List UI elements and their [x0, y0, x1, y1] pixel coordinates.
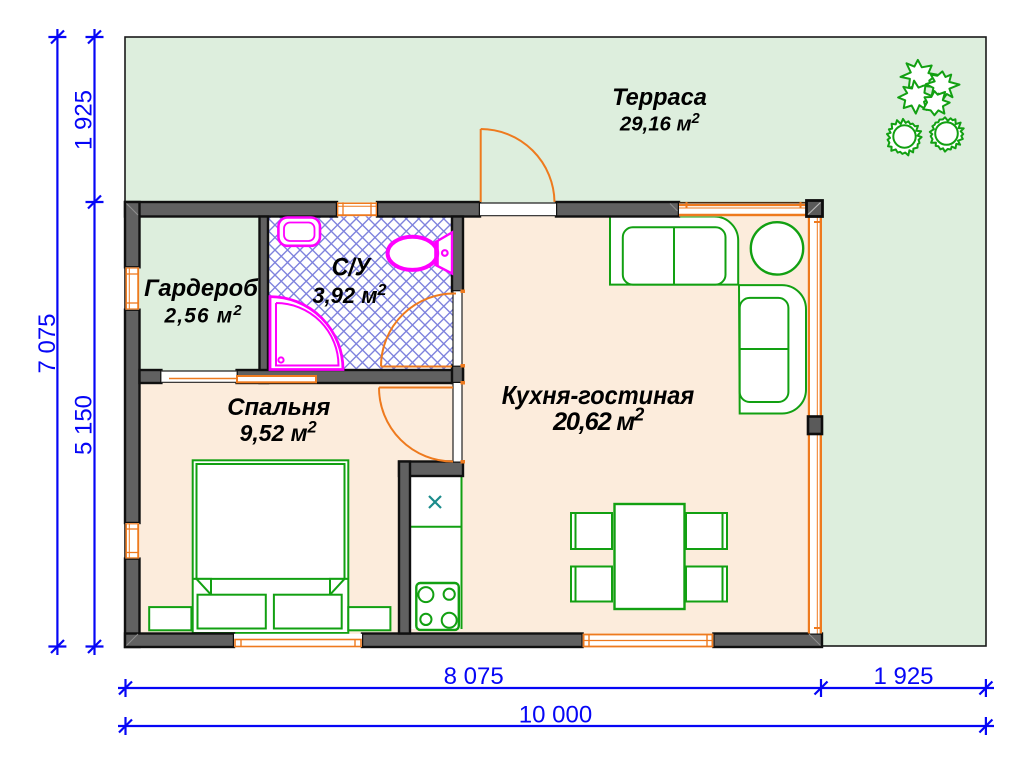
svg-text:5 150: 5 150 [71, 395, 98, 455]
svg-text:8 075: 8 075 [444, 663, 504, 690]
svg-text:20,62 м2: 20,62 м2 [552, 403, 645, 436]
svg-text:7 075: 7 075 [34, 313, 61, 373]
svg-text:С/У: С/У [332, 254, 372, 282]
svg-text:Терраса: Терраса [612, 85, 707, 111]
svg-text:10 000: 10 000 [519, 702, 592, 729]
svg-text:2,56 м2: 2,56 м2 [164, 302, 243, 328]
svg-text:Гардероб: Гардероб [144, 275, 259, 302]
svg-text:3,92 м2: 3,92 м2 [312, 282, 386, 308]
svg-text:Кухня-гостиная: Кухня-гостиная [502, 380, 695, 410]
svg-text:1 925: 1 925 [71, 90, 98, 150]
svg-text:Спальня: Спальня [227, 394, 330, 421]
svg-text:1 925: 1 925 [873, 663, 933, 690]
svg-text:29,16 м2: 29,16 м2 [619, 111, 700, 136]
svg-text:9,52 м2: 9,52 м2 [240, 418, 317, 446]
